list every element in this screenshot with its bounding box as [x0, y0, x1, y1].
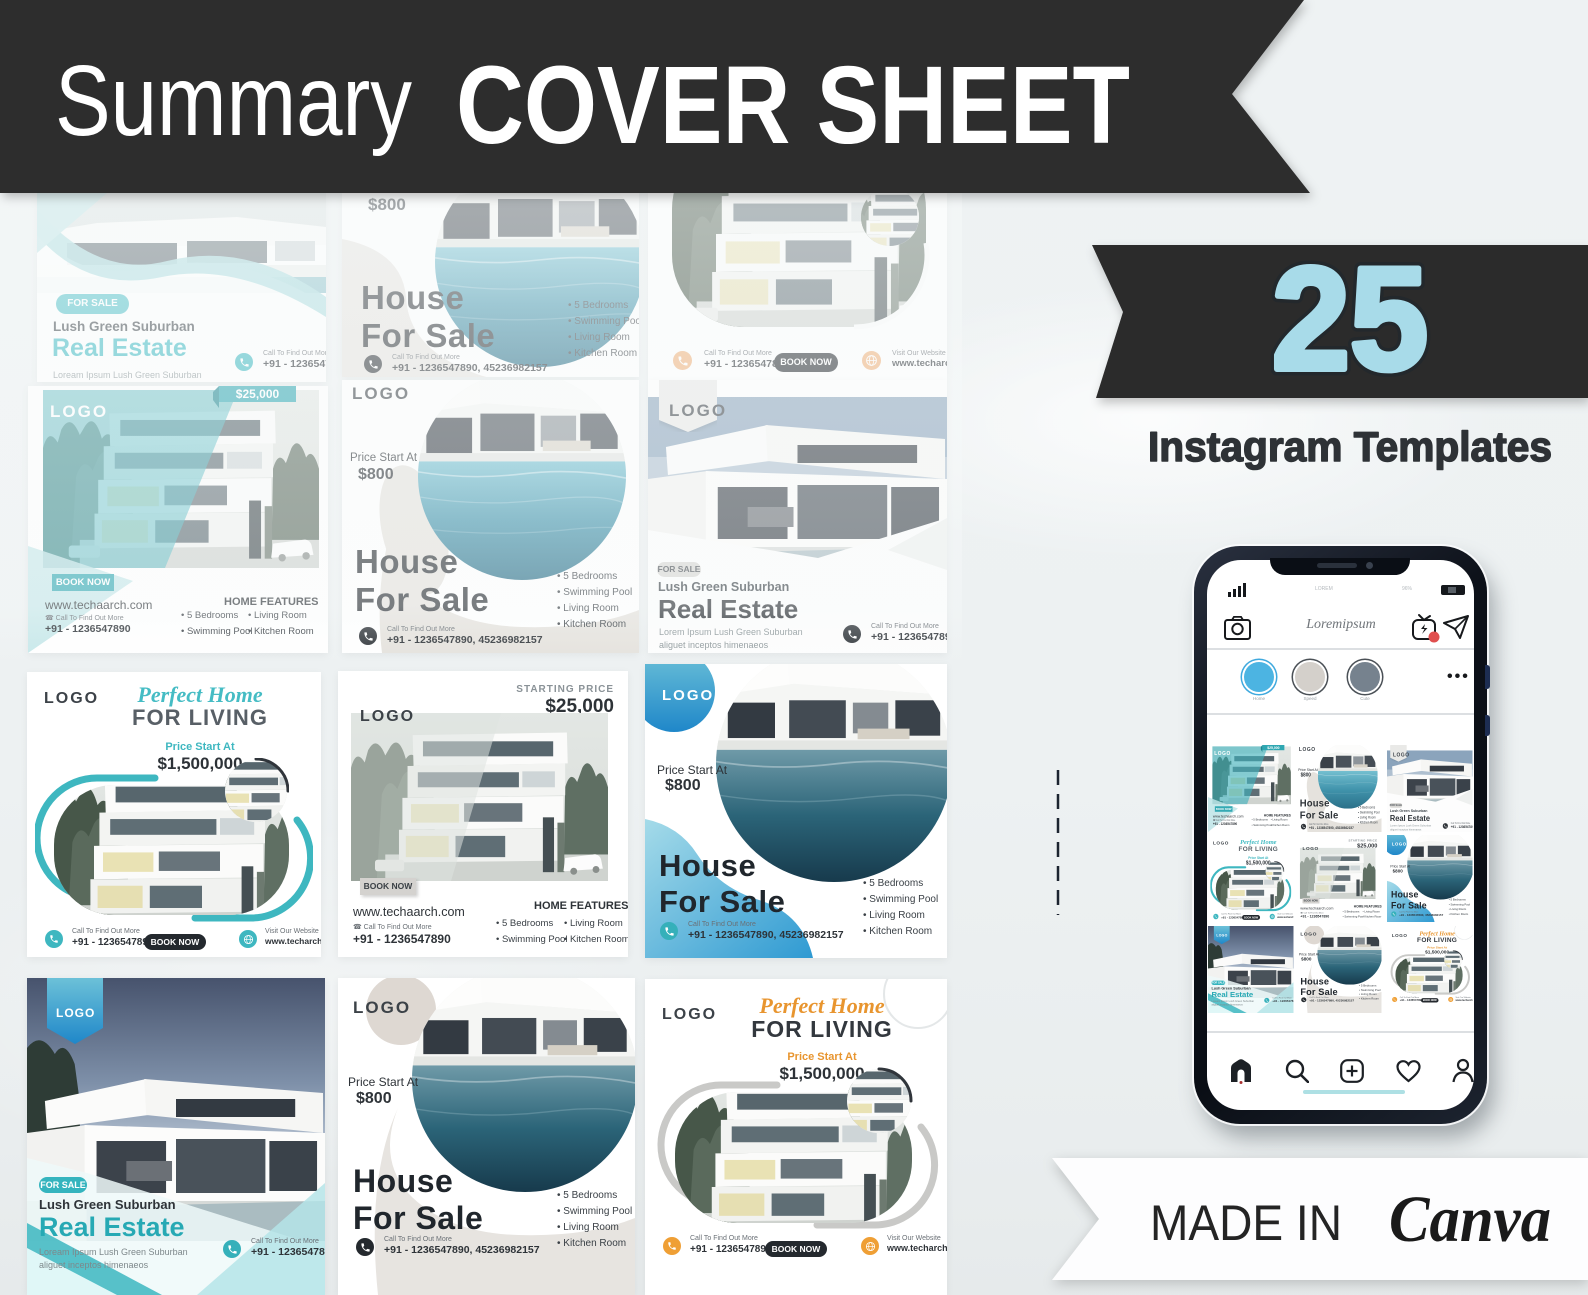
- svg-text:COVER SHEET: COVER SHEET: [456, 44, 1130, 167]
- svg-text:Canva: Canva: [1389, 1183, 1551, 1256]
- svg-text:Instagram Templates: Instagram Templates: [1148, 423, 1552, 470]
- svg-text:Summary: Summary: [55, 45, 412, 157]
- svg-text:25: 25: [1272, 245, 1428, 398]
- svg-text:MADE IN: MADE IN: [1150, 1195, 1342, 1251]
